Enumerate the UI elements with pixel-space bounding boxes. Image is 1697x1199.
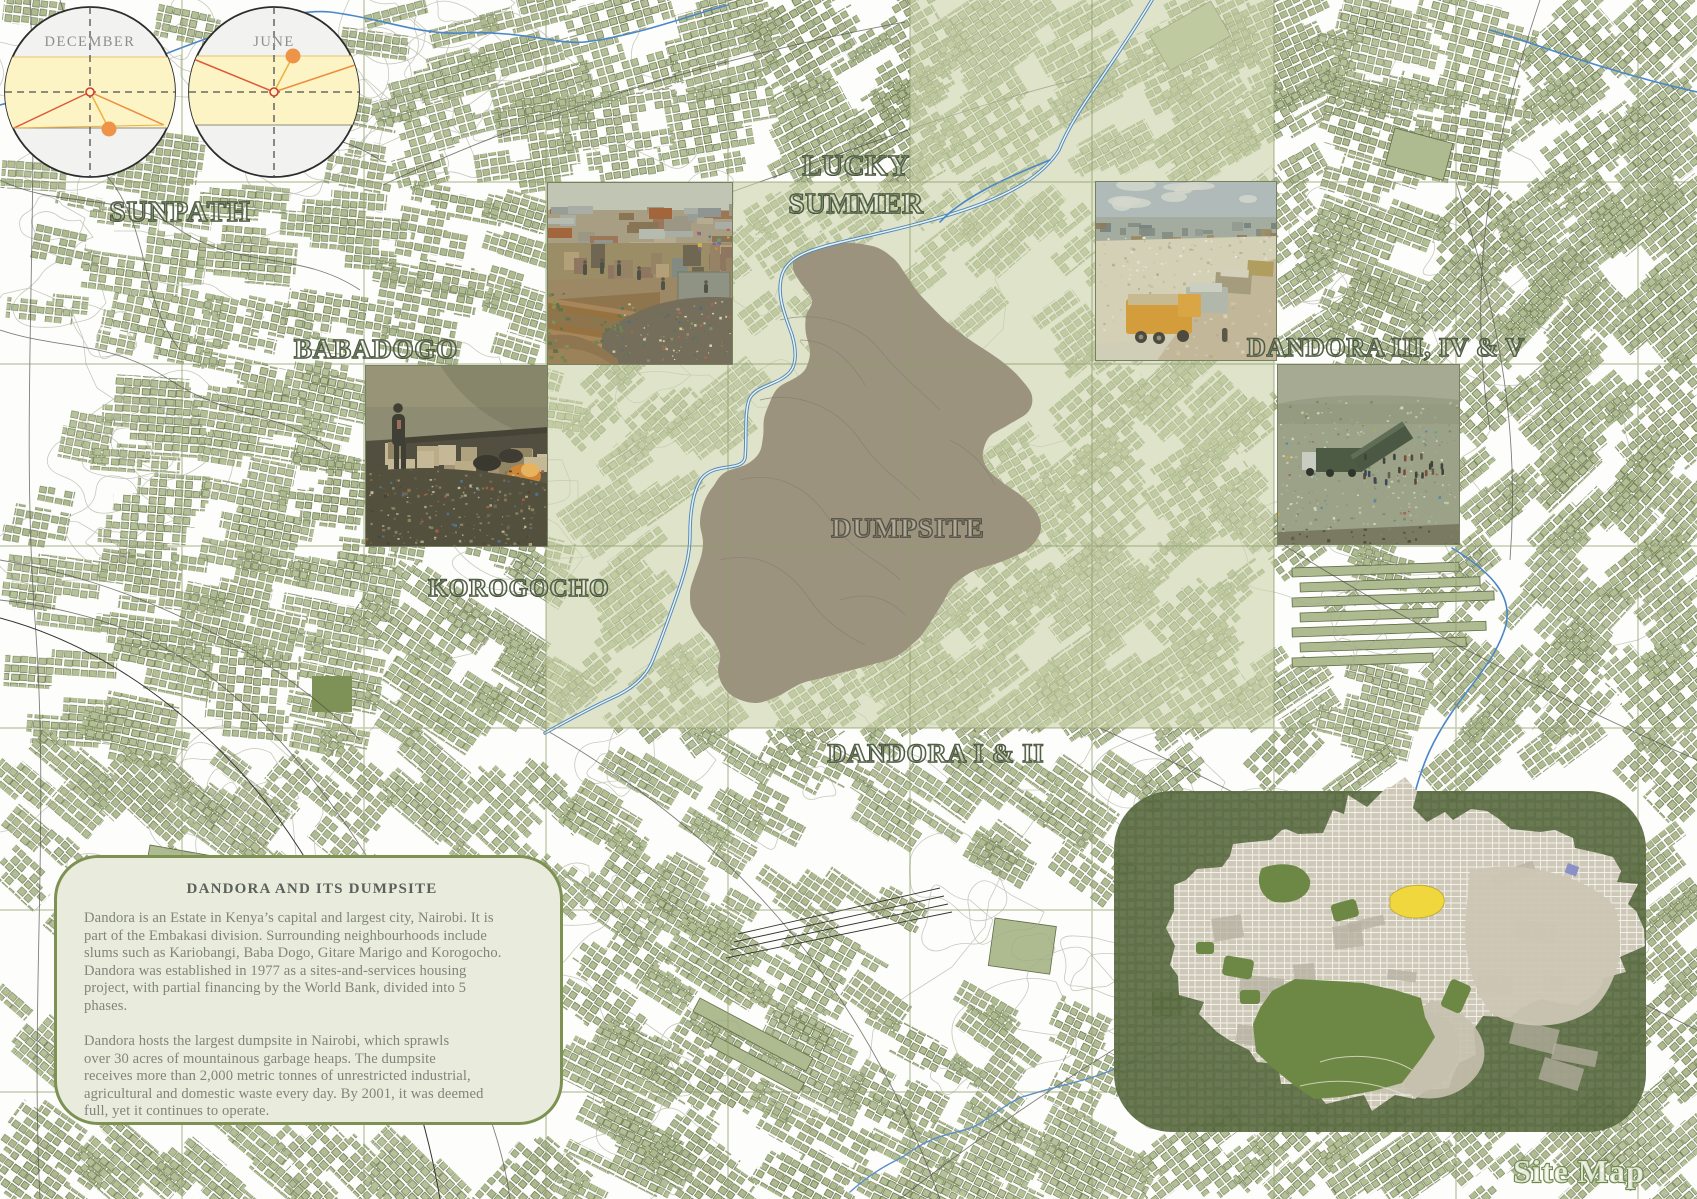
svg-text:BABADOGO: BABADOGO <box>294 334 458 364</box>
svg-text:LUCKY: LUCKY <box>802 150 909 182</box>
svg-text:Site Map: Site Map <box>1513 1153 1645 1189</box>
svg-text:DECEMBER: DECEMBER <box>45 34 136 50</box>
svg-text:DANDORA I & II: DANDORA I & II <box>828 739 1045 768</box>
svg-text:SUMMER: SUMMER <box>788 188 924 220</box>
svg-text:KOROGOCHO: KOROGOCHO <box>428 575 609 602</box>
svg-text:SUNPATH: SUNPATH <box>109 196 250 228</box>
svg-text:JUNE: JUNE <box>253 34 294 50</box>
svg-text:DANDORA III, IV & V: DANDORA III, IV & V <box>1247 333 1525 362</box>
svg-text:DUMPSITE: DUMPSITE <box>831 512 984 543</box>
